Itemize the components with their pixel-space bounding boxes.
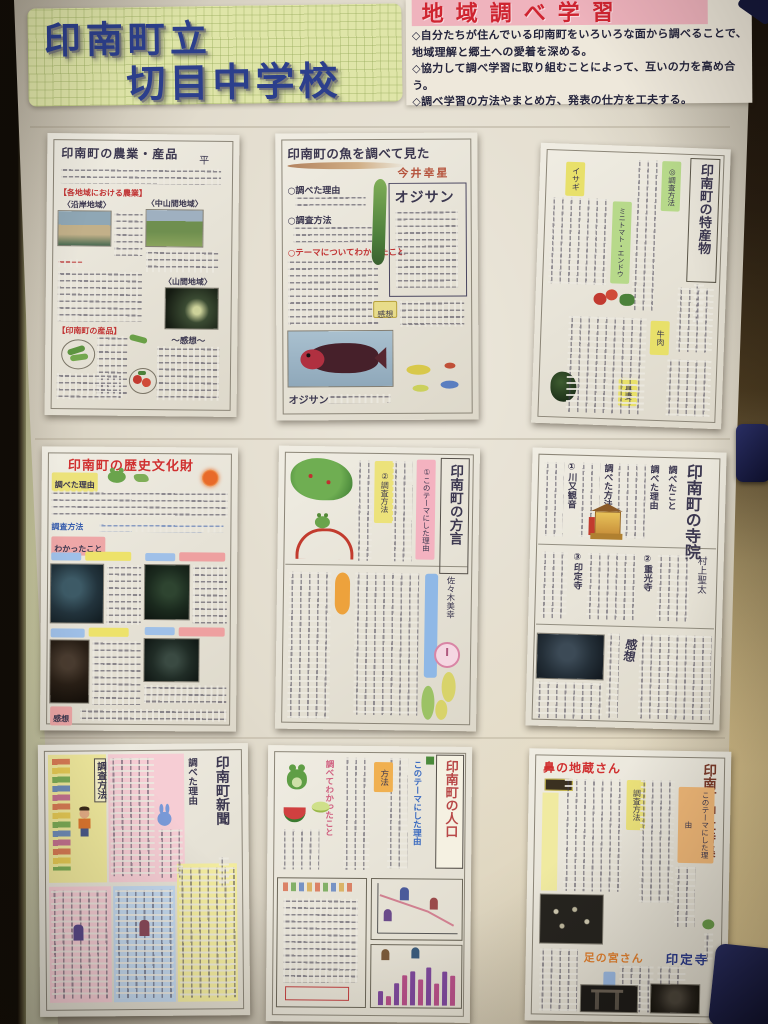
subheading: 〈中山間地域〉 bbox=[147, 198, 203, 210]
rabbit-body bbox=[157, 812, 171, 826]
report-sheet-population: 印南町の人口 このテーマにした理由 方法 調べてわかったこと bbox=[266, 745, 472, 1023]
section-heading: 調べた方法 bbox=[601, 463, 612, 508]
torii-beam bbox=[591, 989, 623, 993]
handwritten-text bbox=[283, 898, 358, 983]
method-chip: 方法 bbox=[374, 762, 393, 792]
small-fish-drawing bbox=[413, 385, 429, 392]
boy-hair bbox=[79, 806, 89, 810]
handwritten-text bbox=[563, 779, 623, 892]
handwritten-text bbox=[674, 867, 695, 927]
handwritten-text bbox=[179, 867, 236, 997]
product-label: イサギ bbox=[571, 167, 581, 191]
small-fish-drawing bbox=[406, 365, 430, 375]
handwritten-text bbox=[639, 780, 675, 903]
sheet-title: 印南町の農業・産品 bbox=[61, 144, 178, 162]
reason-chip: 調べた理由 bbox=[52, 472, 98, 491]
kanso-heading: ～感想～ bbox=[171, 334, 205, 346]
frog-drawing bbox=[284, 761, 310, 793]
handwritten-text bbox=[536, 682, 603, 720]
section-heading: ①川又観音 bbox=[565, 462, 576, 508]
tomato bbox=[142, 378, 151, 387]
kanso-heading: 感想 bbox=[622, 637, 638, 663]
ashinomiya-heading: 足の宮さん bbox=[584, 949, 644, 966]
method-chip: ②調査方法 bbox=[374, 461, 394, 523]
report-sheet-specialty: 印南町の特産物 ◎調査方法 ミニトマト・エンドウ イサギ 牛肉 真妻 bbox=[531, 143, 731, 429]
handwritten-text bbox=[676, 288, 714, 353]
small-figure-drawing bbox=[139, 920, 149, 936]
handwritten-text bbox=[353, 573, 419, 716]
slogan-chip bbox=[285, 986, 349, 1001]
map-dot bbox=[309, 474, 313, 478]
section-heading: 調べたこと bbox=[665, 465, 676, 510]
product-label: ミニトマト・エンドウ bbox=[616, 208, 626, 278]
yellow-note-band bbox=[541, 792, 559, 890]
handwritten-text bbox=[52, 490, 228, 517]
sun-drawing bbox=[202, 469, 219, 486]
handwritten-text bbox=[99, 523, 223, 533]
handwritten-text bbox=[288, 259, 378, 325]
green-square-icon bbox=[426, 756, 434, 764]
school-sign-card: 印南町立 切目中学校 bbox=[27, 3, 402, 106]
section-heading: ③印定寺 bbox=[571, 553, 581, 590]
sheet-title: 印南町の方言 bbox=[447, 464, 462, 545]
frog-eye bbox=[324, 513, 328, 517]
method-label: ②調査方法 bbox=[380, 472, 390, 513]
handwritten-text bbox=[146, 250, 218, 273]
caption-chip-red bbox=[179, 627, 225, 636]
handwritten-text bbox=[666, 359, 712, 417]
cultural-property-photo bbox=[50, 640, 88, 702]
handwritten-text bbox=[638, 634, 712, 720]
stick-figure bbox=[400, 887, 409, 900]
colorful-heading-bar bbox=[283, 882, 355, 892]
jizo-heading: 鼻の地蔵さん bbox=[543, 759, 621, 777]
temple-gate-photo bbox=[651, 984, 699, 1013]
kanso-label: 感想 bbox=[377, 310, 393, 319]
rabbit-ear bbox=[165, 804, 169, 814]
population-bar-chart bbox=[370, 944, 463, 1009]
cultural-property-photo bbox=[51, 564, 103, 622]
sheet-title: 印南町の歴史文化財 bbox=[68, 455, 194, 475]
subheading: 〈山間地域〉 bbox=[164, 276, 212, 288]
handwritten-text bbox=[157, 346, 220, 401]
report-sheet-dialect: ①このテーマにした理由 印南町の方言 佐々木美幸 ②調査方法 bbox=[275, 446, 480, 732]
tomato-leaf bbox=[138, 371, 146, 375]
sheet-title: 印南町の魚を調べて見た bbox=[287, 143, 430, 163]
bridge-arch bbox=[295, 528, 353, 560]
frog-eye bbox=[119, 468, 124, 473]
handwritten-text bbox=[548, 197, 609, 285]
reason-chip: ①このテーマにした理由 bbox=[415, 460, 435, 560]
report-sheet-temples: 印南町の寺院 調べたこと 調べた理由 調べた方法 ①川又観音 村上聖太 ②重光寺… bbox=[525, 448, 726, 731]
coastline-photo bbox=[58, 211, 110, 246]
goal-item: ◇自分たちが住んでいる印南町をいろいろな面から調べることで、地域理解と郷土への愛… bbox=[412, 26, 748, 61]
frog-on-kaeru-bridge-drawing bbox=[293, 512, 352, 559]
kanso-label: 感想 bbox=[53, 714, 69, 723]
title-box: 印南町の人口 bbox=[435, 755, 464, 869]
pea-pod bbox=[619, 294, 634, 307]
boy-shirt bbox=[78, 818, 90, 828]
rabbit-drawing bbox=[156, 804, 172, 826]
torii-gate-photo bbox=[581, 985, 637, 1012]
section-heading: 調べた理由 bbox=[647, 465, 658, 510]
poster-crease bbox=[30, 126, 730, 128]
frog-eye bbox=[317, 513, 321, 517]
unit-title: 地域調べ学習 bbox=[422, 0, 626, 28]
handwritten-text bbox=[391, 461, 412, 561]
subheading: 〈沿岸地域〉 bbox=[63, 199, 111, 211]
frog-drawing bbox=[108, 471, 126, 483]
reason-heading: 調べた理由 bbox=[186, 758, 196, 806]
sheet-title: 印南町の特産物 bbox=[695, 163, 712, 254]
tomato bbox=[605, 289, 617, 300]
pea-pods-drawing bbox=[61, 339, 95, 369]
green-blob-drawing bbox=[702, 919, 714, 929]
section-heading: 【各地域における農業】 bbox=[59, 187, 147, 199]
torii-post bbox=[595, 991, 599, 1009]
green-fish-drawing bbox=[371, 179, 387, 265]
injoji-heading: 印定寺 bbox=[666, 949, 710, 969]
bulletin-board-photo: 印南町立 切目中学校 地域調べ学習 ◇自分たちが住んでいる印南町をいろいろな面か… bbox=[0, 0, 768, 1024]
handwritten-text bbox=[80, 709, 226, 722]
kanso-chip: 感想 bbox=[50, 706, 72, 725]
handwritten-text bbox=[287, 572, 331, 719]
frog-body bbox=[315, 516, 330, 528]
findings-box bbox=[276, 877, 367, 1008]
method-heading: 調査方法 bbox=[94, 758, 106, 802]
report-sheet-shrines: 印南町神社特集 鼻の地蔵さん 調査方法 このテーマにした理由 足の宮さん 印定寺 bbox=[525, 748, 732, 1023]
pea-pods-drawing bbox=[129, 334, 151, 350]
findings-oval bbox=[335, 572, 351, 614]
handwritten-text bbox=[110, 758, 155, 876]
caption-chip-yellow bbox=[89, 628, 129, 637]
stick-figure bbox=[430, 898, 438, 910]
handwritten-text bbox=[343, 758, 370, 870]
frog-eye bbox=[110, 468, 115, 473]
rainbow-strip bbox=[52, 759, 71, 871]
golden-altar-drawing bbox=[586, 503, 627, 542]
pea-pod bbox=[129, 334, 148, 344]
handwritten-text bbox=[355, 461, 372, 561]
sheet-title: 印南町新聞 bbox=[214, 755, 229, 825]
unit-sign-card: 地域調べ学習 ◇自分たちが住んでいる印南町をいろいろな面から調べることで、地域理… bbox=[406, 0, 753, 105]
frog-eye bbox=[289, 764, 296, 771]
handwritten-text bbox=[281, 829, 319, 869]
stick-figure bbox=[381, 949, 389, 960]
handwritten-text bbox=[396, 210, 458, 288]
title-box: 印南町の方言 bbox=[439, 458, 470, 574]
title-box: 印南町の特産物 bbox=[686, 158, 720, 283]
leaf-drawing bbox=[134, 474, 149, 482]
group-photo bbox=[540, 894, 603, 943]
population-line-chart bbox=[371, 878, 464, 941]
magnet-right-edge bbox=[736, 424, 768, 482]
reason-label: 調べた理由 bbox=[55, 480, 95, 489]
caption-chip-blue bbox=[145, 627, 175, 635]
rabbit-ear bbox=[159, 804, 163, 814]
fish-head bbox=[300, 349, 324, 369]
terraced-fields-photo bbox=[146, 210, 202, 247]
altar-base bbox=[590, 533, 622, 540]
school-name-line2: 切目中学校 bbox=[126, 50, 342, 109]
handwritten-text bbox=[566, 316, 647, 415]
poster-crease bbox=[40, 737, 725, 739]
torii-post bbox=[615, 992, 619, 1010]
feature-box: オジサン bbox=[389, 183, 468, 297]
frog-eye bbox=[298, 764, 305, 771]
handwritten-text bbox=[656, 555, 690, 622]
reason-label: ①このテーマにした理由 bbox=[421, 468, 431, 552]
reason-chip: このテーマにした理由 bbox=[677, 787, 714, 864]
reason-heading: このテーマにした理由 bbox=[411, 760, 421, 845]
fish-eye bbox=[306, 353, 310, 357]
author-name: 佐々木美幸 bbox=[445, 576, 455, 619]
handwritten-text bbox=[542, 462, 564, 536]
report-sheet-fish: 印南町の魚を調べて見た 今井幸星 ○調べた理由 ○調査方法 ○テーマについてわか… bbox=[275, 132, 478, 420]
poster-crease bbox=[35, 438, 730, 440]
boy-legs bbox=[81, 828, 89, 836]
product-label: 牛肉 bbox=[656, 330, 666, 346]
caption-chip-red bbox=[179, 552, 225, 561]
tomato-and-peas-drawing bbox=[591, 285, 638, 313]
tomato bbox=[133, 375, 142, 384]
sheet-title: 印南町の人口 bbox=[443, 760, 457, 838]
reason-label: このテーマにした理由 bbox=[684, 792, 710, 860]
author-name: 今井幸星 bbox=[397, 165, 449, 181]
small-fish-drawing bbox=[444, 363, 455, 369]
handwritten-text bbox=[539, 948, 578, 1011]
small-figure-drawing bbox=[73, 925, 83, 941]
feature-fish-name: オジサン bbox=[395, 187, 455, 207]
product-chip: イサギ bbox=[565, 162, 585, 197]
cultural-property-photo bbox=[145, 565, 189, 619]
handwritten-text bbox=[51, 890, 108, 998]
author-name: 平 bbox=[199, 152, 209, 167]
handwritten-text bbox=[606, 634, 620, 718]
handwritten-text bbox=[294, 225, 380, 242]
stick-figure bbox=[411, 947, 419, 958]
method-label: ◎調査方法 bbox=[667, 167, 677, 206]
author-name: 村上聖太 bbox=[695, 556, 706, 594]
mountain-greenhouse-photo bbox=[165, 288, 217, 329]
handwritten-text bbox=[296, 195, 366, 208]
goal-item: ◇調べ学習の方法やまとめ方、発表の仕方を工夫する。 bbox=[412, 92, 748, 111]
findings-heading: 調べてわかったこと bbox=[323, 760, 333, 837]
photo-caption: オジサン bbox=[289, 391, 329, 406]
handwritten-text bbox=[115, 890, 174, 999]
handwritten-text bbox=[107, 565, 141, 625]
ojisan-fish-photo bbox=[288, 331, 392, 387]
handwritten-text bbox=[329, 394, 391, 403]
handwritten-text bbox=[540, 552, 568, 619]
magnet-bottom-right bbox=[708, 943, 768, 1024]
report-sheet-heritage: 印南町の歴史文化財 調べた理由 調査方法 わかったこと 感 bbox=[40, 446, 238, 731]
pea-pod bbox=[70, 353, 89, 361]
handwritten-text bbox=[400, 301, 464, 327]
cultural-property-photo bbox=[144, 639, 198, 681]
report-sheet-newspaper: 印南町新聞 調べた理由 調査方法 bbox=[38, 743, 250, 1017]
section-heading: ②重光寺 bbox=[641, 554, 651, 591]
handwritten-text bbox=[92, 641, 140, 705]
melon-slice-drawing bbox=[312, 801, 330, 812]
caption-chip-yellow bbox=[85, 552, 131, 561]
caption-chip-blue bbox=[145, 553, 175, 561]
handwritten-text bbox=[57, 373, 121, 400]
handwritten-text bbox=[114, 212, 142, 256]
frog-belly bbox=[292, 777, 302, 787]
handwritten-text bbox=[144, 685, 226, 704]
handwritten-text bbox=[61, 167, 221, 185]
handwritten-text bbox=[586, 553, 636, 620]
stick-figure bbox=[384, 909, 392, 921]
caption-chip-blue bbox=[51, 552, 81, 560]
unit-goals: ◇自分たちが住んでいる印南町をいろいろな面から調べることで、地域理解と郷土への愛… bbox=[412, 26, 749, 111]
tomatoes-drawing bbox=[129, 368, 157, 394]
clock-hand bbox=[446, 648, 448, 656]
caption-chip-blue bbox=[51, 628, 85, 637]
bar-group bbox=[376, 963, 458, 1006]
sheet-title: 印南町の寺院 bbox=[682, 463, 701, 559]
handwritten-text bbox=[58, 271, 143, 322]
kanso-chip: 感想 bbox=[373, 301, 397, 318]
product-chip: ミニトマト・エンドウ bbox=[610, 201, 632, 284]
map-dot bbox=[326, 480, 330, 484]
product-chip: 牛肉 bbox=[650, 321, 670, 356]
method-heading: 調査方法 bbox=[51, 521, 83, 532]
altar-body bbox=[594, 511, 621, 536]
method-chip: ◎調査方法 bbox=[661, 161, 682, 212]
small-fish-drawing bbox=[441, 381, 459, 389]
report-sheet-agriculture: 印南町の農業・産品 平 【各地域における農業】 〈沿岸地域〉 〈中山間地域〉 〈… bbox=[45, 133, 240, 417]
handwritten-text bbox=[193, 565, 227, 623]
method-label: 方法 bbox=[379, 769, 389, 786]
red-bracket-heading bbox=[58, 259, 82, 267]
boy-drawing bbox=[76, 808, 92, 836]
goal-item: ◇協力して調べ学習に取り組むことによって、互いの力を高め合う。 bbox=[412, 59, 748, 94]
temple-photo bbox=[537, 634, 604, 680]
